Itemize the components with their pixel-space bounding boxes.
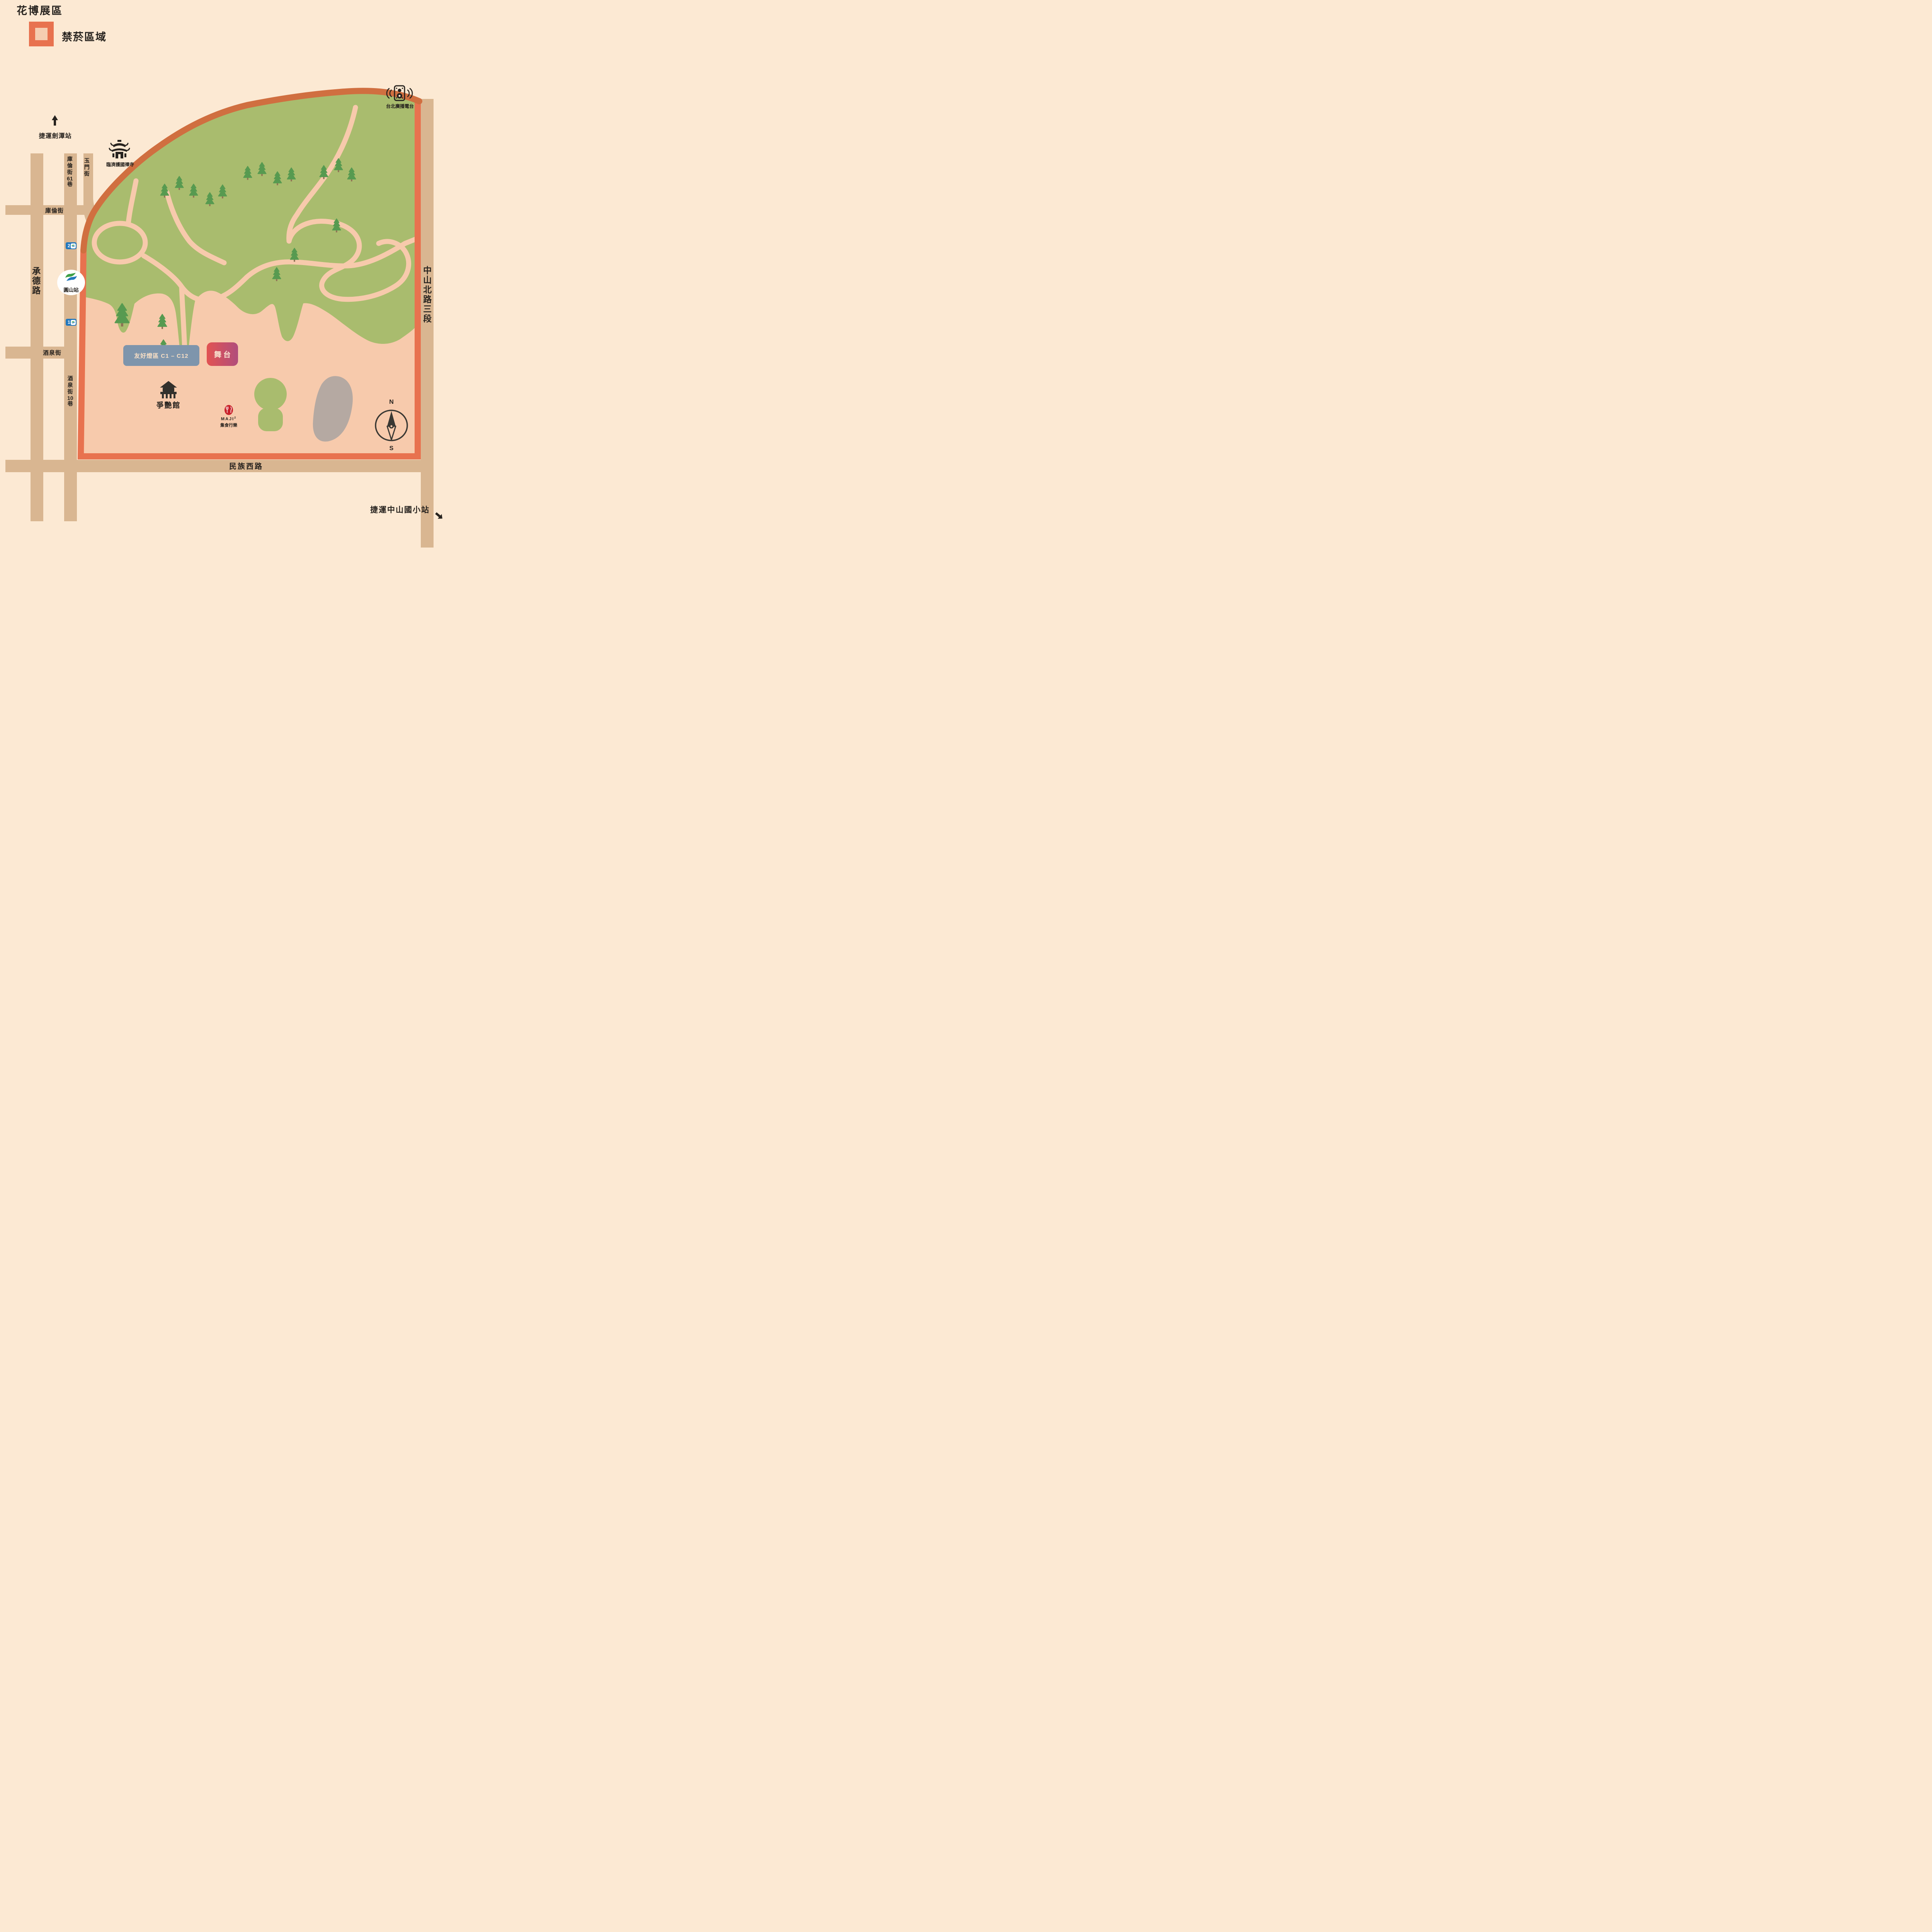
exit-2-number: 2 (66, 243, 70, 248)
road-jiuquan-lane10-part2: 巷 (67, 401, 73, 407)
compass-south-label: S (388, 445, 395, 452)
road-jiuquan-lane10-digits: 10 (67, 395, 73, 401)
green-mound (254, 378, 287, 431)
landmark-maji-sub: 集食行樂 (206, 422, 252, 428)
stage-box: 舞台 (207, 342, 238, 366)
exit-1-metro-icon (71, 320, 76, 325)
compass-north-label: N (388, 399, 395, 406)
road-zhongshan-label: 中山北路三段 (422, 266, 431, 324)
landmark-temple-label: 臨濟護國禪寺 (89, 161, 151, 168)
station-zhongshan-es-label: 捷運中山國小站 (346, 503, 454, 515)
station-yuanshan-label: 圓山站 (52, 286, 90, 293)
maji-sup: 2 (234, 417, 236, 419)
road-jiuquan-lane10-part1: 酒泉街 (67, 376, 73, 395)
road-jiuquan-lane10-label: 酒泉街10巷 (67, 376, 73, 407)
road-kulun-lane61-part1: 庫倫街 (67, 156, 73, 176)
landmark-maji-name: MAJI2 (206, 417, 252, 422)
exit-1-number: 1 (66, 320, 70, 325)
exit-2-badge: 2 (66, 242, 77, 249)
road-kulun-lane61-label: 庫倫街61巷 (67, 156, 73, 188)
road-kulun-lane61-digits: 61 (67, 176, 73, 181)
lantern-area-box: 友好燈區 C1 – C12 (123, 345, 199, 366)
legend-label: 禁菸區域 (62, 29, 107, 44)
maji-text: MAJI (221, 417, 234, 422)
stage-label: 舞台 (212, 349, 233, 359)
exit-2-metro-icon (71, 243, 76, 248)
road-kulun-lane61-part2: 巷 (67, 181, 73, 188)
lantern-area-label: 友好燈區 C1 – C12 (134, 352, 189, 360)
page-title: 花博展區 (17, 2, 63, 17)
landmark-expo-dome-label: 爭艷館 (138, 400, 199, 410)
legend-no-smoking-swatch (29, 22, 54, 46)
road-minzu-label: 民族西路 (200, 461, 293, 471)
road-jiuquan-label: 酒泉街 (29, 349, 75, 357)
road-kulun-label: 庫倫街 (31, 206, 78, 214)
exit-1-badge: 1 (66, 319, 77, 326)
expo-map: 花博展區 禁菸區域 捷運劍潭站 臨濟護國禪寺 台北廣播電台 承德路 庫倫街61巷… (0, 0, 456, 548)
restaurant-icon (224, 405, 233, 415)
road-chengde-label: 承德路 (31, 267, 40, 296)
station-jiantan-label: 捷運劍潭站 (24, 131, 86, 140)
landmark-radio-label: 台北廣播電台 (369, 103, 431, 109)
road-yumen-label: 玉門街 (84, 158, 90, 177)
